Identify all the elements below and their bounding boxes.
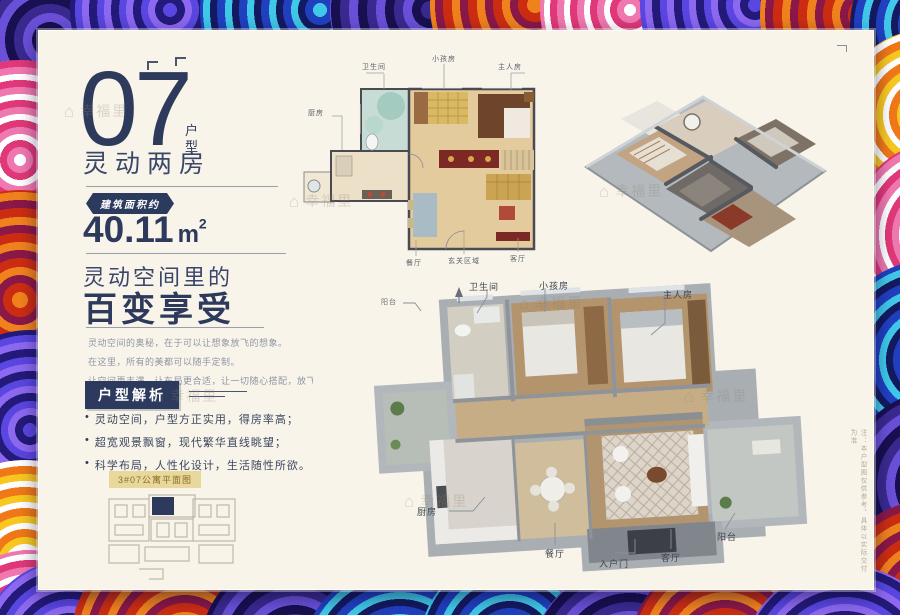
render-3d-iso	[561, 49, 851, 281]
highlighted-unit	[152, 497, 174, 515]
description-line: 灵动空间的奥秘，在于可以让想象放飞的想象。	[88, 334, 313, 353]
analysis-label: 户型解析	[85, 381, 179, 409]
room-label-living: 客厅	[661, 551, 681, 564]
bullet-dot-icon: •	[85, 457, 90, 473]
disclaimer: 注：本户型图仅供参考，具体以实际交付为准	[847, 429, 867, 579]
analysis-bullet: •超宽观景飘窗，现代繁华直线眺望；	[85, 434, 325, 450]
bullet-text: 灵动空间，户型方正实用，得房率高；	[95, 411, 299, 427]
floorplan-3d: 卫生间 小孩房 主人房 厨房 餐厅 入户门 客厅 阳台 阳台	[369, 279, 871, 581]
room-label-master-room: 主人房	[663, 288, 693, 301]
analysis-decoration	[189, 387, 249, 401]
divider	[86, 186, 278, 187]
unit-type-char: 户	[185, 123, 198, 139]
divider	[86, 327, 264, 328]
analysis-bullets: •灵动空间，户型方正实用，得房率高； •超宽观景飘窗，现代繁华直线眺望； •科学…	[85, 411, 325, 480]
room-label-balcony: 阳台	[717, 530, 737, 543]
analysis-bullet: •灵动空间，户型方正实用，得房率高；	[85, 411, 325, 427]
corner-mark	[837, 45, 847, 52]
room-label-kitchen: 厨房	[417, 505, 437, 518]
bullet-dot-icon: •	[85, 411, 90, 427]
floorplan-2d-drawing	[296, 46, 546, 286]
page: ⌂幸福里 ⌂幸福里 ⌂幸福里 ⌂幸福里 ⌂幸福里 ⌂幸福里 ⌂幸福里 07 户 …	[0, 0, 900, 615]
bullet-text: 超宽观景飘窗，现代繁华直线眺望；	[95, 434, 287, 450]
divider	[86, 253, 286, 254]
area-unit: m	[178, 221, 199, 248]
area-exponent: 2	[199, 216, 207, 232]
room-label-balcony-left: 阳台	[381, 297, 397, 307]
room-label-bathroom: 卫生间	[469, 280, 499, 293]
building-plate-badge: 3#07公寓平面图	[109, 471, 201, 488]
slogan-line2: 百变享受	[83, 282, 235, 331]
house-icon: ⌂	[64, 103, 76, 120]
room-label-kitchen: 厨房	[308, 108, 324, 118]
description-line: 在这里，所有的美都可以随手定制。	[88, 353, 313, 372]
unit-name: 灵动两房	[83, 144, 211, 180]
room-label-bathroom: 卫生间	[362, 62, 386, 72]
room-label-dining: 餐厅	[406, 258, 422, 268]
room-label-foyer: 玄关区域	[448, 256, 480, 266]
floorplan-2d: 卫生间 小孩房 主人房 厨房 餐厅 玄关区域 客厅	[296, 46, 546, 286]
content-panel: ⌂幸福里 ⌂幸福里 ⌂幸福里 ⌂幸福里 ⌂幸福里 ⌂幸福里 ⌂幸福里 07 户 …	[38, 30, 874, 590]
room-label-master-room: 主人房	[498, 62, 522, 72]
room-label-living: 客厅	[510, 254, 526, 264]
area-number: 40.11	[83, 209, 174, 250]
building-plate-diagram	[95, 487, 250, 587]
room-label-entry-door: 入户门	[599, 557, 629, 570]
area-value: 40.11m2	[83, 209, 207, 251]
render-3d-drawing	[561, 49, 851, 281]
room-label-dining: 餐厅	[545, 547, 565, 560]
room-label-kids-room: 小孩房	[432, 54, 456, 64]
bullet-dot-icon: •	[85, 434, 90, 450]
room-label-kids-room: 小孩房	[539, 279, 569, 292]
floorplan-3d-drawing	[369, 279, 871, 581]
